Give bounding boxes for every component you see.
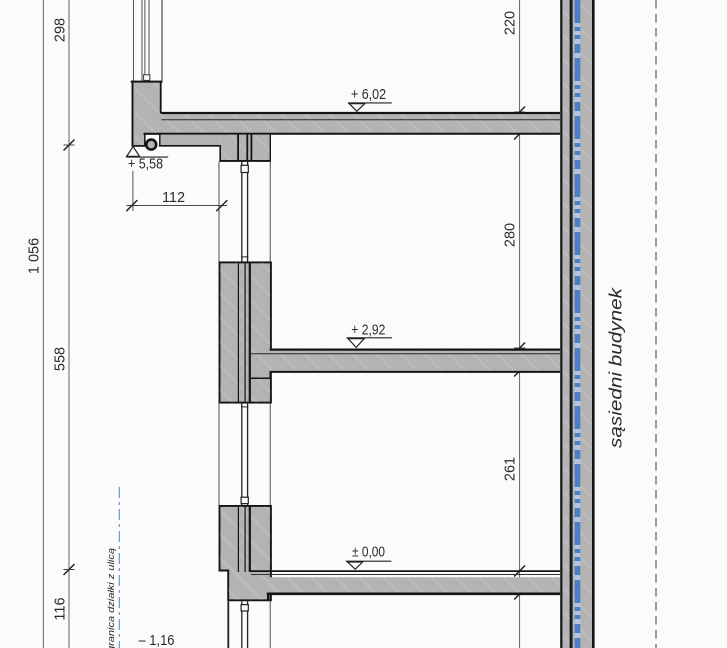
svg-text:298: 298 xyxy=(52,18,68,42)
svg-text:112: 112 xyxy=(162,190,185,206)
svg-text:261: 261 xyxy=(502,457,518,481)
svg-text:1 056: 1 056 xyxy=(27,238,43,274)
svg-text:220: 220 xyxy=(502,11,518,35)
svg-text:558: 558 xyxy=(52,347,68,371)
svg-text:+ 2,92: + 2,92 xyxy=(351,323,385,339)
svg-text:+ 6,02: + 6,02 xyxy=(351,87,386,103)
svg-text:116: 116 xyxy=(52,597,68,620)
svg-text:granica działki z ulicą: granica działki z ulicą xyxy=(106,548,117,648)
svg-text:± 0,00: ± 0,00 xyxy=(352,545,385,561)
svg-text:280: 280 xyxy=(502,223,518,247)
svg-text:sąsiedni budynek: sąsiedni budynek xyxy=(606,287,626,448)
svg-text:+ 5,58: + 5,58 xyxy=(128,157,163,173)
svg-text:– 1,16: – 1,16 xyxy=(139,633,175,648)
